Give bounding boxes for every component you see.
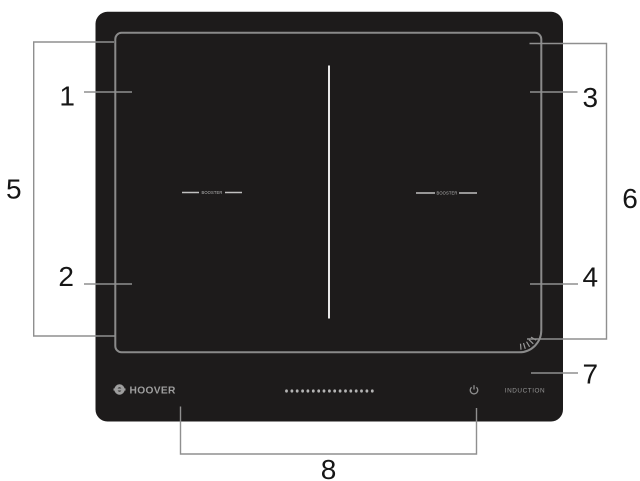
svg-text:HOOVER: HOOVER [130, 385, 177, 396]
svg-text:INDUCTION: INDUCTION [505, 388, 545, 395]
svg-text:7: 7 [583, 359, 599, 390]
svg-text:3: 3 [583, 82, 599, 113]
svg-text:5: 5 [6, 174, 22, 205]
svg-text:2: 2 [58, 261, 74, 292]
svg-text:4: 4 [583, 262, 599, 293]
svg-text:BOOSTER: BOOSTER [436, 191, 457, 196]
svg-text:BOOSTER: BOOSTER [201, 190, 222, 195]
svg-text:8: 8 [321, 454, 337, 481]
svg-text:6: 6 [622, 183, 638, 214]
svg-text:1: 1 [59, 81, 75, 112]
